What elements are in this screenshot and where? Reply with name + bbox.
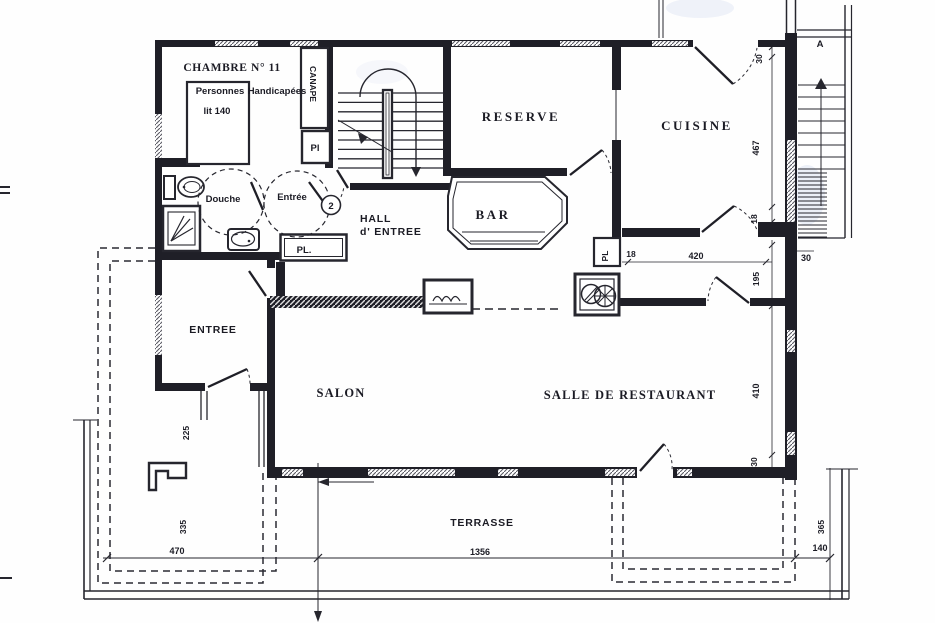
window	[215, 41, 258, 46]
label-bed-line1: Personnes	[196, 86, 245, 97]
dim-30-top: 30	[754, 54, 764, 64]
dim-140: 140	[812, 543, 827, 553]
label-entree-chambre: Entrée	[277, 192, 307, 203]
label-canape: CANAPE	[308, 66, 318, 102]
dim-470: 470	[169, 546, 184, 556]
window	[605, 469, 635, 476]
dim-410: 410	[751, 383, 761, 398]
hearth-box	[424, 280, 472, 313]
dim-18-right: 18	[749, 214, 759, 224]
window	[155, 295, 162, 355]
dim-467: 467	[751, 140, 761, 155]
dim-420: 420	[688, 251, 703, 261]
label-salon: SALON	[316, 386, 365, 400]
dim-1356: 1356	[470, 547, 490, 557]
window	[368, 469, 455, 476]
turning-circle-entree	[264, 171, 330, 237]
kitchen-bottom-door	[702, 206, 734, 232]
window	[498, 469, 518, 476]
label-bar: BAR	[476, 207, 511, 222]
main-staircase	[338, 69, 444, 178]
dim-195: 195	[751, 272, 761, 286]
window	[787, 432, 795, 455]
label-hall-1: HALL	[360, 213, 391, 225]
window	[290, 41, 318, 46]
floor-plan-drawing: CHAMBRE N° 11 Personnes Handicapées lit …	[0, 0, 935, 623]
label-chambre: CHAMBRE N° 11	[183, 62, 280, 74]
label-pl-cuisine: PL	[600, 251, 610, 262]
label-door-number: 2	[328, 201, 333, 212]
dim-335: 335	[178, 520, 188, 534]
reserve-door	[570, 150, 602, 175]
glazed-wall	[270, 296, 424, 308]
dim-30-low: 30	[749, 457, 759, 467]
window	[677, 469, 692, 476]
scan-smudges	[0, 0, 825, 578]
label-restaurant: SALLE DE RESTAURANT	[544, 388, 717, 402]
label-hall-2: d' ENTREE	[360, 226, 422, 238]
stair-up-arrow	[815, 78, 827, 89]
label-terrasse: TERRASSE	[450, 517, 514, 529]
label-pl-chambre: Pl	[311, 143, 320, 154]
dim-18-pl: 18	[626, 249, 636, 259]
kitchen-top-door	[695, 47, 733, 84]
stair-rail	[383, 90, 392, 178]
label-bed-line2: Handicapées	[248, 86, 307, 97]
double-sink-icon	[575, 274, 619, 315]
window	[560, 41, 600, 46]
window	[282, 469, 303, 476]
label-cuisine: CUISINE	[661, 118, 733, 133]
dim-30-wall: 30	[801, 253, 811, 263]
label-entree-room: ENTREE	[189, 324, 236, 336]
window	[155, 114, 162, 160]
douche-door	[251, 182, 263, 210]
window	[652, 41, 688, 46]
floor-plan-canvas: CHAMBRE N° 11 Personnes Handicapées lit …	[0, 0, 935, 623]
entree-terrace-door	[208, 369, 247, 387]
label-bed-line3: lit 140	[204, 106, 231, 117]
stair-door	[337, 170, 348, 188]
label-douche: Douche	[206, 194, 241, 205]
label-stair-section: A	[817, 39, 824, 50]
window	[787, 140, 795, 222]
window	[452, 41, 510, 46]
stair-direction-arrow	[411, 167, 421, 177]
window	[787, 330, 795, 352]
label-reserve: RESERVE	[482, 109, 560, 124]
shower-icon	[163, 206, 200, 251]
planter-outline	[149, 463, 186, 490]
toilet-icon	[164, 176, 204, 199]
label-pl-hall: PL.	[297, 245, 312, 256]
dim-365: 365	[816, 520, 826, 534]
dim-225: 225	[181, 426, 191, 440]
entree-room-door	[249, 271, 266, 296]
